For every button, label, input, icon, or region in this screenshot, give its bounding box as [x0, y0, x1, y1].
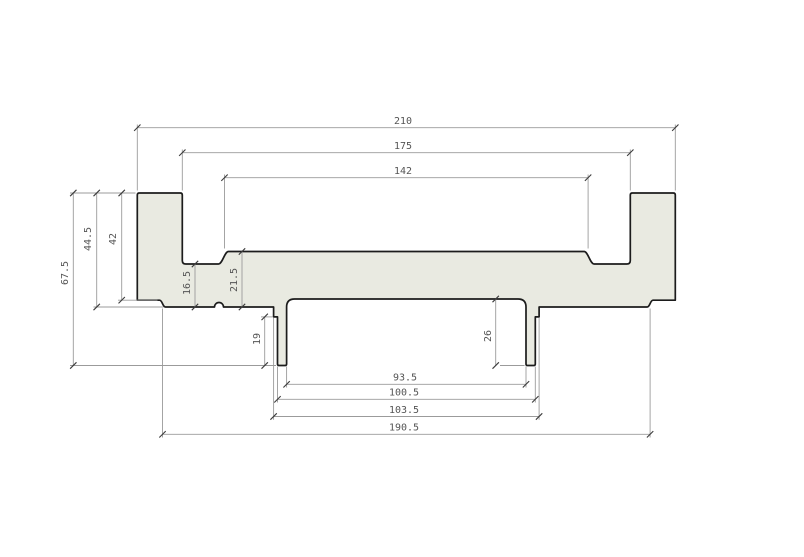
dimension-label: 44.5 — [83, 227, 94, 251]
dimension-label: 100.5 — [389, 388, 419, 399]
dimension-label: 190.5 — [389, 423, 419, 434]
dimension-label: 103.5 — [389, 405, 419, 416]
dimension-label: 210 — [394, 116, 412, 127]
dimension-label: 26 — [483, 330, 494, 342]
dimension-label: 16.5 — [182, 271, 193, 295]
technical-drawing: 21017514293.5100.5103.5190.567.544.54216… — [0, 0, 804, 557]
dimension-label: 42 — [108, 233, 119, 245]
dimension-label: 93.5 — [393, 373, 417, 384]
dimension-label: 175 — [394, 141, 412, 152]
dimension-label: 142 — [394, 166, 412, 177]
dimension-label: 19 — [252, 333, 263, 345]
profile-cross-section — [137, 193, 675, 366]
dimension-label: 21.5 — [229, 268, 240, 292]
dimension-label: 67.5 — [60, 261, 71, 285]
drawing-canvas: 21017514293.5100.5103.5190.567.544.54216… — [0, 0, 804, 557]
